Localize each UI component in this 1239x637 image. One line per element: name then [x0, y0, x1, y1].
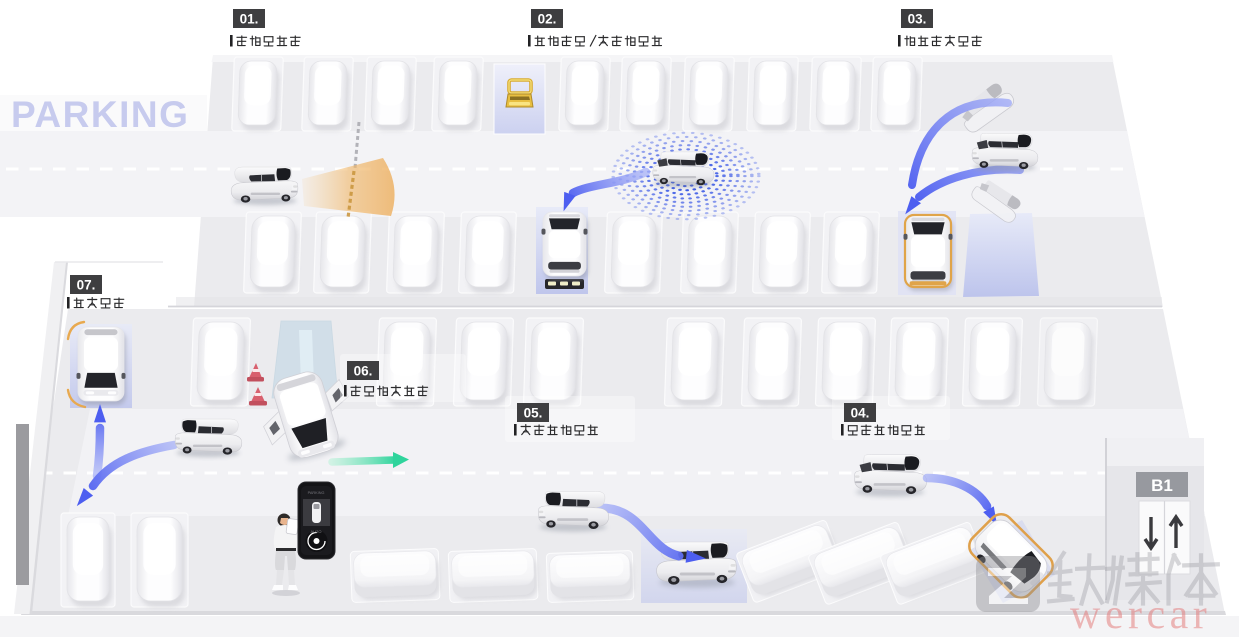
svg-text:05.: 05.	[524, 406, 543, 421]
svg-text:wercar: wercar	[1070, 592, 1211, 637]
svg-text:01.: 01.	[240, 12, 259, 27]
svg-text:02.: 02.	[538, 12, 557, 27]
svg-text:PARKING: PARKING	[308, 491, 325, 495]
svg-text:B1: B1	[1151, 476, 1173, 495]
svg-text:06.: 06.	[354, 364, 373, 379]
svg-text:PARKING: PARKING	[11, 94, 189, 135]
svg-text:04.: 04.	[851, 406, 870, 421]
svg-text:07.: 07.	[77, 278, 96, 293]
svg-text:AUTO: AUTO	[310, 529, 321, 534]
svg-text:03.: 03.	[908, 12, 927, 27]
